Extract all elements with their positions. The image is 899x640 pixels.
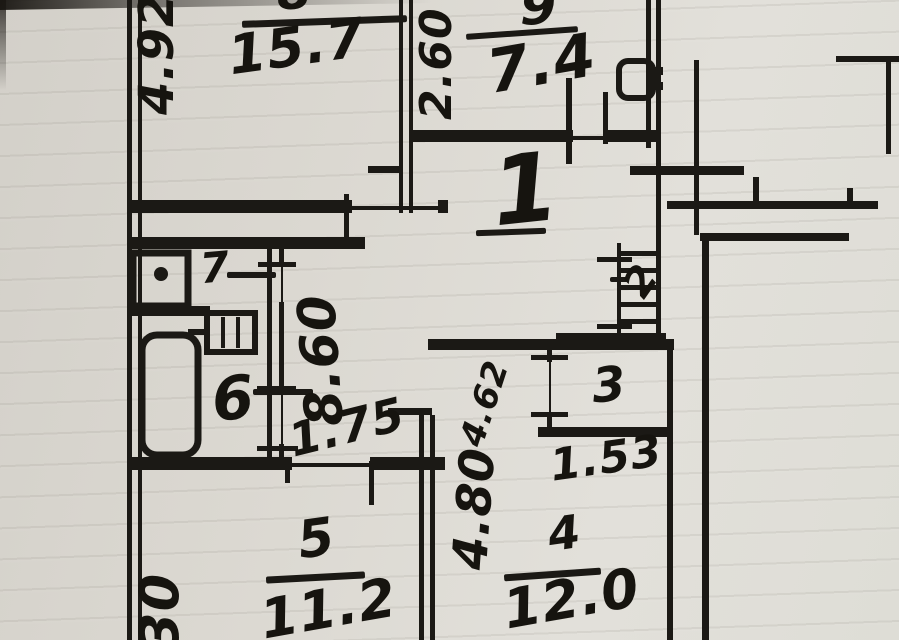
wall-room5-top [127, 457, 445, 505]
dim-bottom-left: 30 [133, 573, 187, 640]
floor-plan-scan: 8 15.7 9 7.4 1 2 3 1.53 4 12.0 5 11.2 6 … [0, 0, 899, 640]
room7-pointer [227, 272, 276, 278]
room3-number: 3 [590, 360, 628, 411]
bathtub-icon [142, 335, 198, 455]
dim-left-top: 4.92 [133, 0, 181, 115]
room4-number: 4 [545, 508, 584, 558]
dim-room4-side: 4.80 [446, 446, 502, 571]
room9-area: 7.4 [483, 25, 601, 103]
neighbor-wall-corner [836, 56, 899, 154]
wall-bath-top [127, 237, 365, 249]
room5-number: 5 [295, 511, 339, 568]
room6-number: 6 [209, 367, 257, 430]
entrance-landing-lines [630, 166, 878, 241]
room7-number: 7 [198, 246, 232, 290]
dim-kitchen-depth: 2.60 [415, 7, 459, 120]
hall-number: 1 [487, 140, 564, 241]
wall-room8-kitchen [368, 0, 413, 213]
